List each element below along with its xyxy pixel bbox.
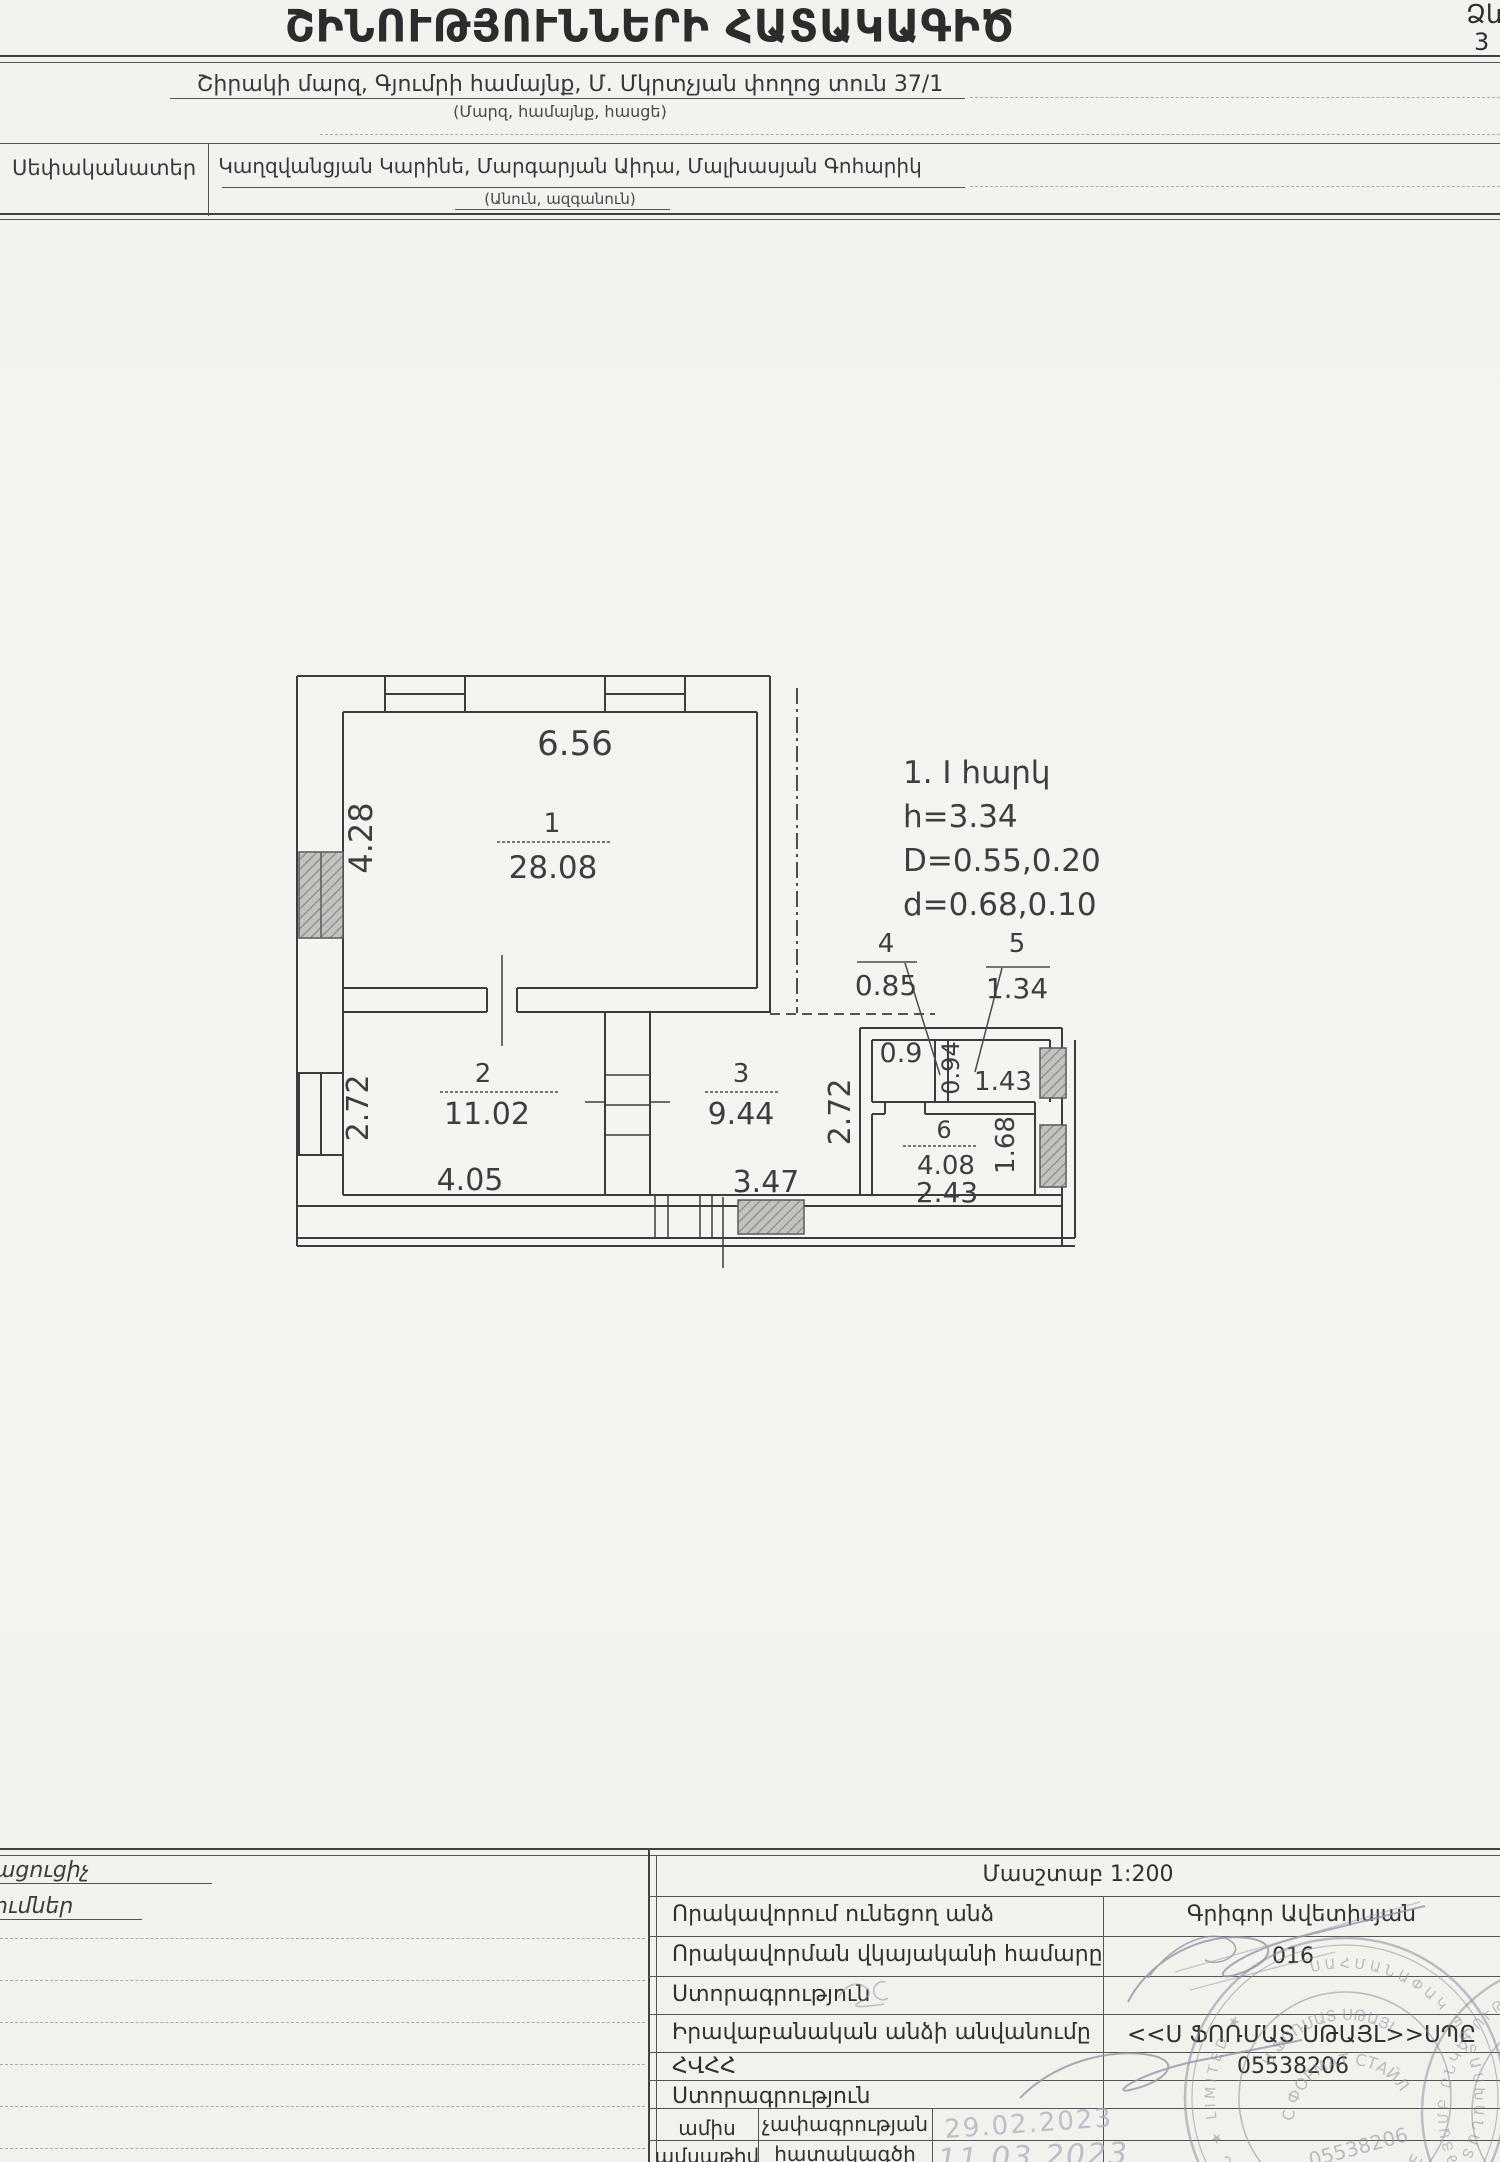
scan-line-a [970,97,1500,98]
room1-number: 1 [543,808,560,839]
room6-width-label: 2.43 [916,1176,978,1209]
hall-height-label: 0.94 [937,1041,965,1094]
annotation-D: D=0.55,0.20 [903,843,1101,879]
certificate-value: 016 [1103,1944,1483,1969]
plan-date-label-top: հատակագծի [758,2142,932,2162]
owner-hint-underline [455,209,670,210]
left-fragment-top: ացուցիչ [0,1858,212,1884]
svg-text:S FORMAT STYLE: S FORMAT STYLE [1302,2148,1434,2162]
footer-left-row-5 [0,2106,645,2107]
room4-number: 4 [878,929,895,959]
scan-line-b [320,134,1500,135]
room1-area: 28.08 [509,850,598,886]
hall-width-label: 0.9 [880,1038,923,1069]
address-hint: (Մարզ, համայնք, հասցե) [220,102,900,121]
owner-underline [222,187,965,188]
qualified-person-label: Որակավորում ունեցող անձ [672,1902,994,1927]
left-fragment-bottom: ումներ [0,1894,142,1920]
room6-height-label: 1.68 [991,1116,1021,1174]
owner-box-bottom-rule-1 [0,213,1500,215]
handwritten-dates: 29.02.2023 11.03.2023 [937,2103,1130,2162]
owner-value: Կաղզվանցյան Կարինե, Մարգարյան Աիդա, Մալխ… [170,154,970,178]
footer-left-row-1 [0,1938,645,1939]
room1-height-label: 4.28 [342,802,380,873]
footer-left-row-2 [0,1980,645,1981]
measurement-date-label: չափագրության [758,2112,932,2136]
room5-number: 5 [1009,929,1026,959]
signature-label-1: Ստորագրություն [672,1982,870,2007]
tin-label: ՀՎՀՀ [672,2054,736,2079]
owner-box-top-rule [0,143,1500,144]
form-number: 3 [1474,28,1489,56]
stamp-name-en: S FORMAT STYLE [1302,2148,1434,2162]
niche-width-label: 1.43 [974,1067,1032,1097]
address-line: Շիրակի մարզ, Գյումրի համայնք, Մ. Մկրտչյա… [170,72,970,97]
table-row-line-4 [648,2014,1500,2015]
form-code-label: Ձև [1466,0,1500,30]
date-label-bottom: ամսաթիվ [650,2144,764,2162]
room2-area: 11.02 [444,1097,530,1132]
table-row-line-8 [648,2140,1500,2141]
owner-label: Սեփականատեր [12,156,196,180]
footer-left-row-3 [0,2022,645,2023]
stamp-number: 05538206 [1306,2122,1411,2162]
scan-line-c [970,186,1500,187]
date-label-top: ամիս [656,2116,758,2140]
room2-number: 2 [475,1059,492,1089]
signature-label-2: Ստորագրություն [672,2084,870,2109]
legal-entity-value: <<Ս ՖՈՌՄԱՏ ՍԹԱՅԼ>>ՍՊԸ [1103,2022,1500,2048]
legal-entity-label: Իրավաբանական անձի անվանումը [672,2020,1091,2045]
qualified-person-value: Գրիգոր Ավետիսյան [1103,1902,1500,1927]
table-date-divider-2 [932,2108,933,2162]
page-title: ՇԻՆՈՒԹՅՈՒՆՆԵՐԻ ՀԱՏԱԿԱԳԻԾ [270,1,1030,52]
scanned-floor-plan-document: ՇԻՆՈՒԹՅՈՒՆՆԵՐԻ ՀԱՏԱԿԱԳԻԾ Ձև 3 Շիրակի մար… [0,0,1500,2162]
annotation-h: h=3.34 [903,799,1018,835]
footer-top-rule-1 [0,1848,1500,1850]
header-rule-2 [0,62,1500,63]
room6-number: 6 [936,1116,951,1144]
annotation-floor: 1. I հարկ [903,755,1051,791]
measurement-date-value: 29.02.2023 [943,2103,1114,2145]
room1-width-label: 6.56 [537,724,613,764]
room3-area: 9.44 [708,1097,775,1132]
room2-height-label: 2.72 [341,1075,376,1142]
scale-label: Մասշտաբ 1:200 [656,1862,1500,1887]
floor-plan: 6.56 4.28 1 28.08 1. I հարկ h=3.34 D=0.5… [240,650,1150,1290]
tin-value: 05538206 [1103,2054,1483,2079]
certificate-label: Որակավորման վկայականի համարը [672,1942,1103,1967]
footer-top-rule-2 [0,1855,1500,1856]
address-underline [170,98,965,99]
table-row-line-3 [648,1976,1500,1977]
annotation-d: d=0.68,0.10 [903,887,1097,923]
footer-left-row-6 [0,2148,645,2149]
room3-number: 3 [733,1059,750,1089]
room4-area: 0.85 [855,969,917,1002]
table-row-line-1 [648,1896,1500,1897]
table-row-line-5 [648,2052,1500,2053]
table-row-line-2 [648,1936,1500,1937]
header-rule-1 [0,55,1500,57]
room5-area: 1.34 [986,972,1048,1005]
room2-width-label: 4.05 [437,1163,504,1198]
table-row-line-6 [648,2080,1500,2081]
owner-hint: (Անուն, ազգանուն) [220,190,900,208]
room3-height-label: 2.72 [823,1079,858,1146]
footer-left-row-4 [0,2064,645,2065]
room3-width-label: 3.47 [733,1165,800,1200]
owner-box-bottom-rule-2 [0,219,1500,220]
